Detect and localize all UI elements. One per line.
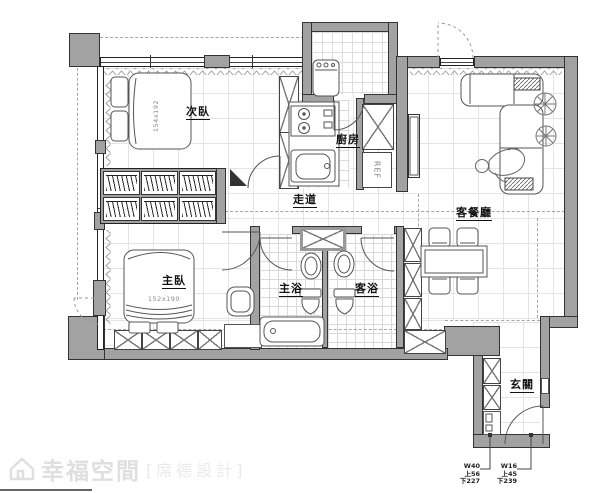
label-master-bath: 主浴 bbox=[279, 283, 303, 297]
wardrobe-cell bbox=[141, 171, 178, 195]
dimension-note-right: W16 上45 下239 bbox=[488, 463, 517, 486]
label-secondary-bedroom: 次臥 bbox=[186, 106, 210, 120]
entry-door-frame bbox=[541, 378, 549, 394]
balcony-wall-bottom-right bbox=[364, 94, 398, 104]
balcony-wall-left bbox=[302, 22, 312, 104]
label-corridor: 走道 bbox=[293, 194, 317, 208]
storage-horizontal bbox=[404, 330, 446, 354]
wall-right-living bbox=[564, 56, 578, 328]
column-top-left bbox=[69, 33, 100, 67]
entry-shoe-cabinet-1 bbox=[483, 358, 501, 384]
dim-bottom: 下239 bbox=[488, 478, 517, 486]
refrigerator: REF bbox=[362, 152, 392, 188]
hanger-icon bbox=[144, 201, 175, 217]
tv-panel bbox=[408, 114, 420, 178]
window-mullion-1 bbox=[150, 55, 151, 68]
window-top-right bbox=[440, 58, 474, 66]
label-kitchen: 廚房 bbox=[336, 134, 360, 148]
dashed-line-left bbox=[77, 38, 78, 300]
wall-strip-entry-left bbox=[473, 355, 483, 435]
master-cabinet-4 bbox=[198, 330, 222, 350]
pantry-cabinet-bottom bbox=[279, 132, 299, 189]
master-cabinet-3 bbox=[170, 330, 198, 350]
master-cabinet-1 bbox=[114, 330, 142, 350]
bed-size-master: 152x190 bbox=[144, 295, 184, 303]
wardrobe-cell bbox=[141, 197, 178, 221]
cabinet-above-fridge bbox=[362, 104, 394, 150]
column-top-middle bbox=[204, 55, 230, 68]
left-wall-pier-3 bbox=[93, 280, 106, 316]
entry-panel-cabinet bbox=[483, 411, 501, 435]
wall-living-left bbox=[396, 56, 408, 192]
floor-plan: REF bbox=[0, 0, 600, 493]
wall-block-entry bbox=[444, 326, 500, 356]
wardrobe-endcap bbox=[216, 168, 226, 224]
wardrobe-cell bbox=[179, 171, 216, 195]
left-wall-pier-1 bbox=[95, 140, 106, 154]
pantry-cabinet-top bbox=[279, 76, 299, 133]
floor-tile-balcony bbox=[312, 32, 388, 94]
label-master-bedroom: 主臥 bbox=[162, 275, 186, 289]
watermark-brand: 幸福空間 bbox=[41, 452, 141, 486]
master-cabinet-2 bbox=[142, 330, 170, 350]
hanger-icon bbox=[182, 175, 213, 191]
wall-top-right-2 bbox=[474, 56, 566, 68]
storage-column-1 bbox=[404, 228, 422, 262]
label-entry: 玄關 bbox=[510, 379, 534, 393]
dashed-line-top bbox=[100, 37, 304, 38]
wall-bath-divider bbox=[322, 234, 328, 348]
dimension-note-left: W40 上56 下227 bbox=[448, 463, 480, 486]
wardrobe-cell bbox=[179, 197, 216, 221]
storage-column-2 bbox=[404, 263, 422, 297]
refrigerator-label: REF bbox=[373, 161, 382, 179]
balcony-wall-bottom-left bbox=[302, 94, 334, 104]
dashed-living-bottom bbox=[445, 320, 540, 321]
dashed-ceiling-corridor bbox=[225, 211, 565, 212]
cabinet-bath-wall bbox=[300, 227, 346, 251]
hanger-icon bbox=[144, 175, 175, 191]
label-living-dining: 客餐廳 bbox=[456, 207, 492, 221]
label-guest-bath: 客浴 bbox=[355, 283, 379, 297]
hanger-icon bbox=[106, 175, 137, 191]
hanger-icon bbox=[106, 201, 137, 217]
balcony-wall-top bbox=[302, 22, 398, 32]
wall-right-entry bbox=[540, 316, 550, 408]
entry-shoe-cabinet-2 bbox=[483, 385, 501, 410]
bottom-edge-line bbox=[0, 489, 92, 491]
wall-bottom-entry bbox=[473, 434, 550, 448]
window-mullion-2 bbox=[252, 55, 253, 68]
storage-column-3 bbox=[404, 298, 422, 330]
dashed-ceiling-living-right bbox=[537, 218, 538, 318]
watermark-designer: [席德設計] bbox=[146, 457, 247, 481]
wall-guest-bath-right bbox=[396, 226, 404, 348]
dim-bottom: 下227 bbox=[448, 478, 480, 486]
hanger-icon bbox=[182, 201, 213, 217]
watermark: 幸福空間 [席德設計] bbox=[8, 452, 247, 486]
window-top bbox=[100, 57, 304, 67]
master-dresser bbox=[224, 324, 262, 348]
wardrobe-cell bbox=[103, 197, 140, 221]
house-logo-icon bbox=[8, 456, 36, 482]
bed-size-secondary: 154x192 bbox=[152, 96, 162, 136]
wardrobe-cell bbox=[103, 171, 140, 195]
